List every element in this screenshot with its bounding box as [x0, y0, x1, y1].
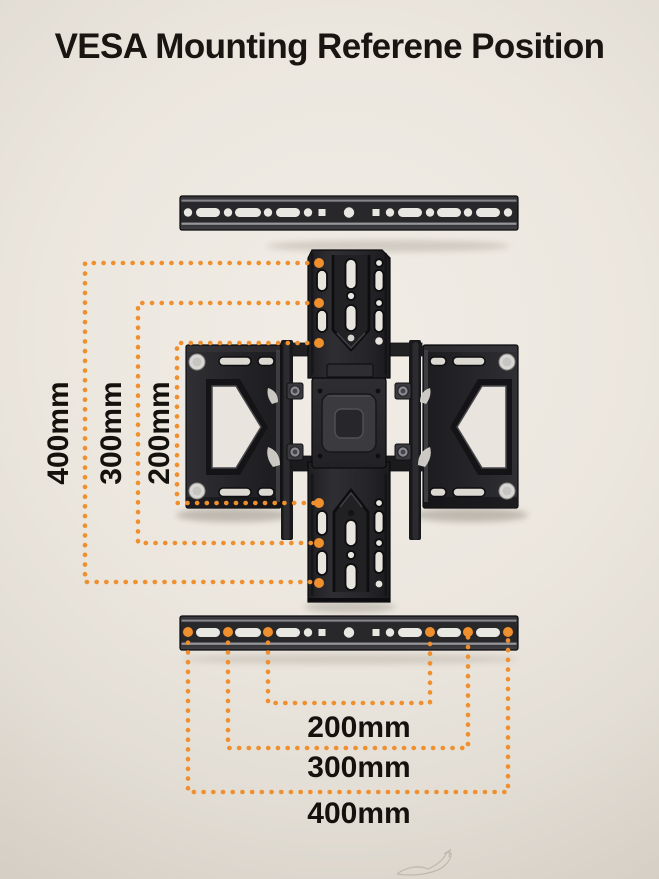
vesa-infographic: VESA Mounting Referene Position [0, 0, 659, 879]
height-label-200mm: 200mm [143, 381, 177, 484]
width-label-200mm: 200mm [307, 711, 410, 745]
width-label-400mm: 400mm [307, 797, 410, 831]
centre-vesa-plate [312, 378, 386, 468]
height-label-300mm: 300mm [95, 381, 129, 484]
left-wing-plate [186, 345, 281, 508]
top-wall-rail [180, 196, 518, 230]
upper-vesa-bracket [308, 250, 390, 378]
height-label-400mm: 400mm [42, 381, 76, 484]
width-label-300mm: 300mm [307, 751, 410, 785]
wall-doodle [397, 850, 451, 875]
vesa-measurement-guides [85, 263, 508, 792]
right-wing-plate [423, 345, 518, 508]
